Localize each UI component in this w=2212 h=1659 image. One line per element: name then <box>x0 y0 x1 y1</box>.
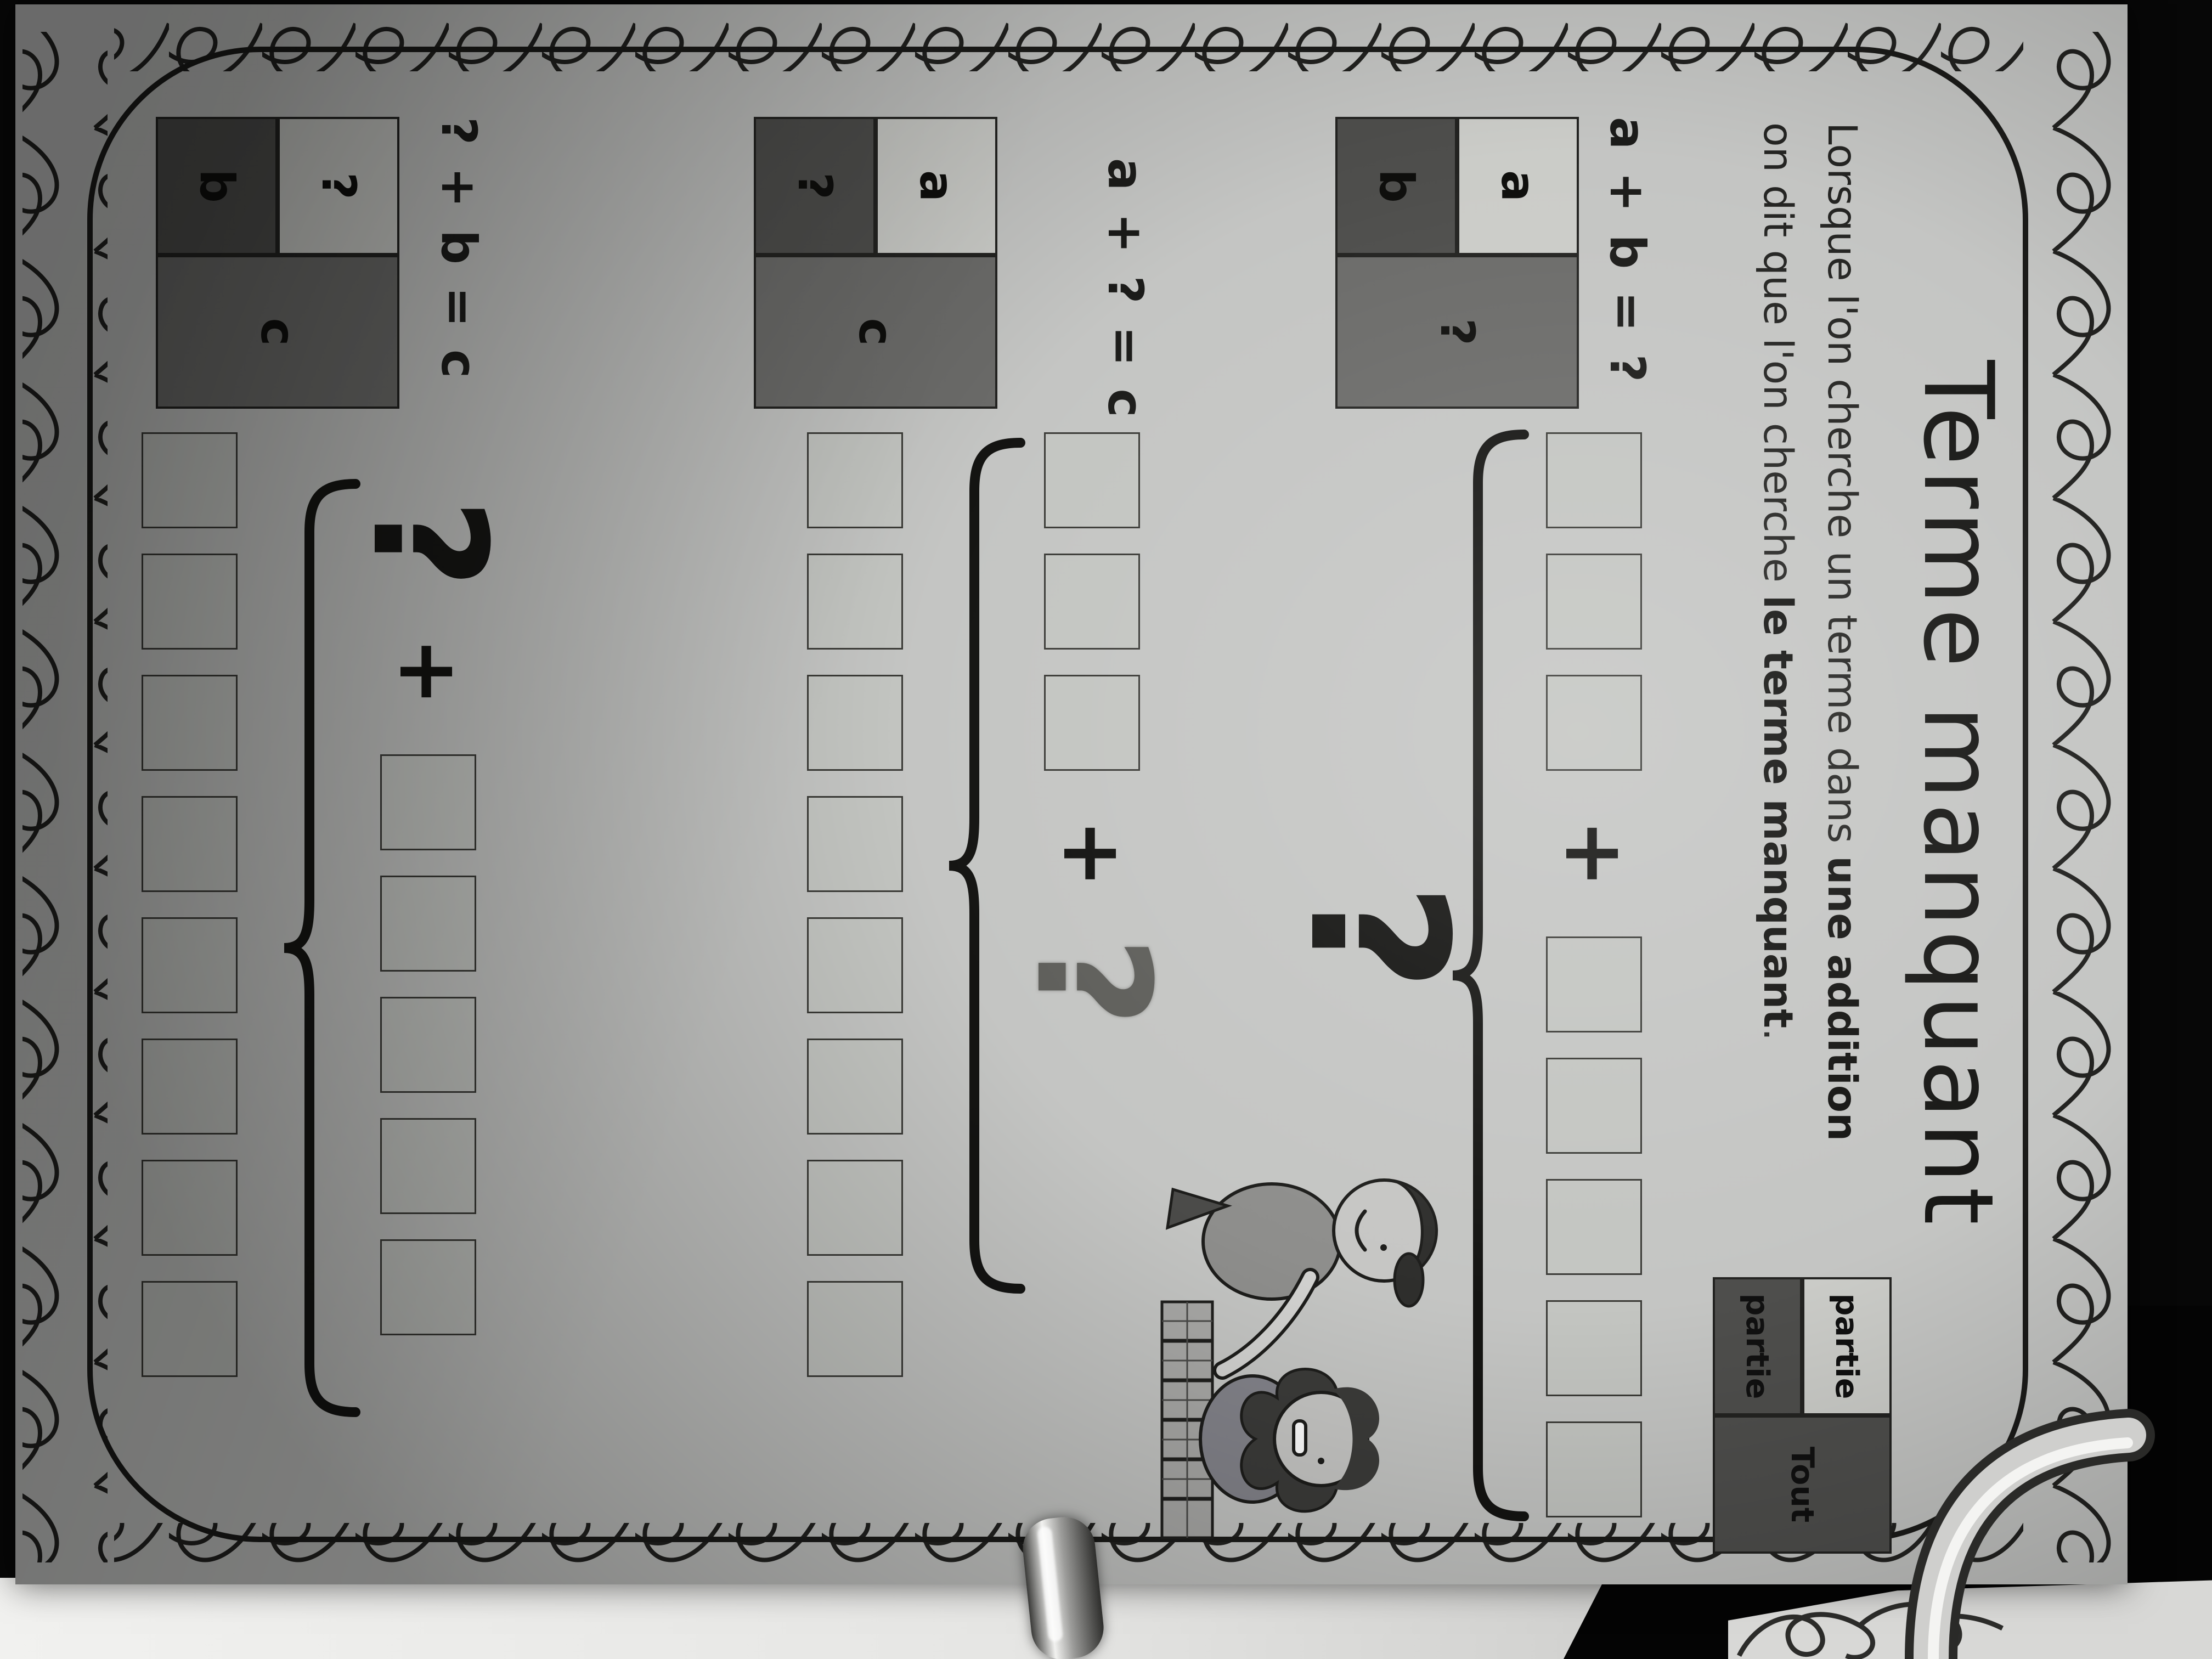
unit-square <box>1546 1421 1642 1517</box>
unit-square <box>1044 675 1140 771</box>
problem3-model-part-unknown: ? <box>278 117 399 255</box>
part-whole-reference-table: partie Tout partie <box>1711 1277 1892 1556</box>
unit-square <box>1546 936 1642 1032</box>
problem3-model-part-b: b <box>156 117 278 255</box>
unit-square <box>142 432 238 528</box>
unit-square <box>380 1239 476 1335</box>
unit-square <box>807 917 903 1013</box>
problem2-addend1-squares <box>1044 432 1140 771</box>
garland-top <box>2033 32 2118 1562</box>
intro-line1-text: Lorsque l'on cherche un terme dans <box>1819 122 1865 856</box>
intro-paragraph: Lorsque l'on cherche un terme dans une a… <box>1746 122 1874 1274</box>
problem1-model-whole: ? <box>1335 255 1579 409</box>
problem2-model: a c ? <box>754 117 997 409</box>
problem2-model-part-a: a <box>876 117 997 255</box>
unit-square <box>1546 554 1642 650</box>
unit-square <box>142 554 238 650</box>
table-cell-part-bottom: partie <box>1713 1277 1802 1415</box>
unit-square <box>1546 432 1642 528</box>
unit-square <box>807 1160 903 1256</box>
unit-square <box>380 876 476 972</box>
table-cell-whole: Tout <box>1713 1415 1892 1554</box>
plus-sign: + <box>1546 819 1642 888</box>
intro-line1-bold: une addition <box>1819 856 1865 1141</box>
intro-line2-bold: le terme manquant <box>1754 595 1801 1028</box>
unit-square <box>807 432 903 528</box>
problem3-model: ? c b <box>156 117 399 409</box>
unit-square <box>142 1160 238 1256</box>
problem1-equation: a + b = ? <box>1599 117 1656 385</box>
unit-square <box>1044 554 1140 650</box>
photographed-workbook-scene: Terme manquant Lorsque l'on cherche un t… <box>0 0 2212 1659</box>
problem1-model-part-a: a <box>1457 117 1579 255</box>
unit-square <box>807 1281 903 1377</box>
problem2-sum-squares <box>807 432 903 1377</box>
unit-square <box>142 917 238 1013</box>
unit-square <box>380 754 476 850</box>
problem3-brace <box>278 476 365 1420</box>
problem2-unknown-addend-question-mark: ? <box>1044 936 1140 1027</box>
problem3-squares-row: ? + <box>380 498 476 1335</box>
problem2-model-part-unknown: ? <box>754 117 876 255</box>
unit-square <box>807 554 903 650</box>
intro-line-2: on dit que l'on cherche le terme manquan… <box>1746 122 1810 1274</box>
unit-square <box>380 997 476 1093</box>
problem1-addend1-squares <box>1546 432 1642 771</box>
intro-line-1: Lorsque l'on cherche un terme dans une a… <box>1810 122 1874 1274</box>
problem3-addend2-squares <box>380 754 476 1335</box>
intro-line2-text: on dit que l'on cherche <box>1754 122 1801 595</box>
plus-sign: + <box>380 637 476 706</box>
table-cell-part-top: partie <box>1802 1277 1892 1415</box>
garland-bottom <box>22 32 108 1562</box>
problem3-equation: ? + b = c <box>431 117 487 381</box>
intro-line2-period: . <box>1754 1028 1801 1041</box>
problem1-model-part-b: b <box>1335 117 1457 255</box>
unit-square <box>807 796 903 892</box>
unit-square <box>807 675 903 771</box>
unit-square <box>142 675 238 771</box>
problem3-sum-squares <box>142 432 238 1377</box>
unit-square <box>142 796 238 892</box>
problem1-unknown-sum-question-mark: ? <box>1283 882 1472 992</box>
girl-figure <box>1200 1369 1379 1511</box>
unit-square <box>807 1039 903 1135</box>
problem1-addend2-squares <box>1546 936 1642 1517</box>
problem2-model-whole: c <box>754 255 997 409</box>
unit-square <box>380 1118 476 1214</box>
problem2-equation: a + ? = c <box>1097 158 1154 420</box>
unit-square <box>142 1039 238 1135</box>
unit-square <box>1546 1300 1642 1396</box>
garland-left <box>114 5 2023 71</box>
problem1-squares-row: + <box>1546 432 1642 1517</box>
binder-ring-large <box>1893 1383 2167 1659</box>
problem3-sum-row <box>142 432 238 1377</box>
problem2-brace <box>943 435 1030 1296</box>
unit-square <box>1546 1179 1642 1275</box>
children-blocks-illustration <box>1140 1140 1502 1562</box>
problem3-model-whole: c <box>156 255 399 409</box>
unit-square <box>142 1281 238 1377</box>
problem3-unknown-addend-question-mark: ? <box>380 498 476 589</box>
worksheet-page: Terme manquant Lorsque l'on cherche un t… <box>15 4 2128 1584</box>
problem1-model: a ? b <box>1335 117 1579 409</box>
unit-square <box>1546 675 1642 771</box>
problem2-sum-row <box>807 432 903 1377</box>
unit-square <box>1044 432 1140 528</box>
page-title: Terme manquant <box>1902 4 2013 1584</box>
problem2-squares-row: + ? <box>1044 432 1140 1027</box>
unit-square <box>1546 1058 1642 1154</box>
plus-sign: + <box>1044 819 1140 888</box>
